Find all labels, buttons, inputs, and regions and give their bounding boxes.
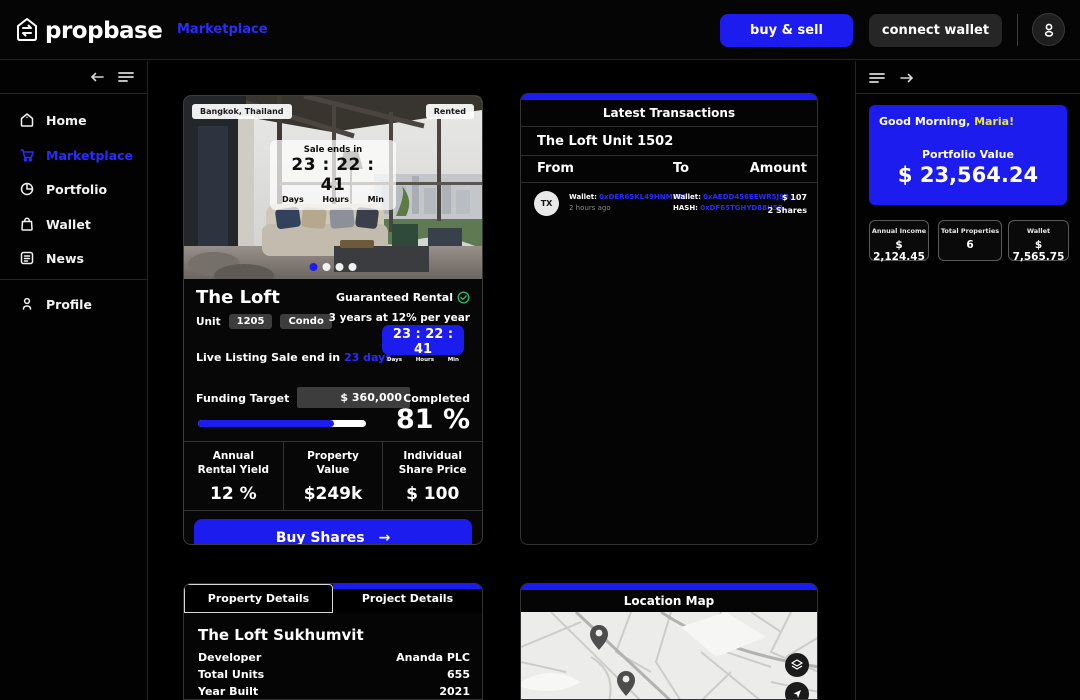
stat-share-price: Individual Share Price $ 100: [382, 442, 482, 510]
cart-icon: [19, 147, 35, 163]
property-stats-row: Annual Rental Yield 12 % Property Value …: [184, 441, 482, 511]
funding-target-label: Funding Target: [196, 392, 289, 405]
carousel-dot[interactable]: [310, 263, 318, 271]
greeting: Good Morning, Maria!: [879, 115, 1014, 128]
funding-progress-fill: [198, 420, 334, 427]
top-bar: propbase Marketplace buy & sell connect …: [0, 0, 1080, 60]
person-icon: [1041, 22, 1057, 38]
photo-carousel-dots: [310, 263, 357, 271]
compass-icon: [790, 687, 804, 700]
countdown-chip: 23 : 22 : 41 Days Hours Min: [382, 325, 464, 355]
location-map-title: Location Map: [521, 590, 817, 612]
hours-label: Hours: [416, 357, 434, 363]
unit-number-chip: 1205: [229, 314, 273, 329]
guarantee-detail: 3 years at 12% per year: [329, 312, 470, 324]
tx-amount-cell: $ 107 2 Shares: [768, 192, 807, 218]
topnav-marketplace-link[interactable]: Marketplace: [177, 22, 268, 37]
stat-annual-rental-yield: Annual Rental Yield 12 %: [184, 442, 283, 510]
verified-check-icon: [457, 291, 470, 304]
tab-property-details[interactable]: Property Details: [184, 584, 333, 613]
connect-wallet-button[interactable]: connect wallet: [869, 14, 1002, 47]
live-listing-row: Live Listing Sale end in 23 days: [196, 351, 392, 364]
project-title: The Loft Sukhumvit: [198, 626, 364, 644]
unit-label: Unit: [196, 316, 221, 328]
col-from: From: [537, 161, 574, 176]
property-card: Bangkok, Thailand Rented Sale ends in 23…: [183, 95, 483, 545]
portfolio-value-label: Portfolio Value: [869, 148, 1067, 161]
funding-target-value: $ 360,000: [297, 387, 410, 408]
sidebar-item-home[interactable]: Home: [0, 105, 148, 135]
tab-project-details[interactable]: Project Details: [333, 584, 482, 613]
profile-icon: [19, 296, 35, 312]
left-sidebar: Home Marketplace Portfolio Wallet News P…: [0, 61, 148, 700]
countdown-time: 23 : 22 : 41: [382, 327, 464, 357]
buy-shares-button[interactable]: Buy Shares →: [194, 519, 472, 545]
min-label: Min: [368, 195, 384, 204]
detail-row-developer: Developer Ananda PLC: [198, 651, 470, 664]
map-compass-button[interactable]: [785, 682, 809, 700]
property-photo: Bangkok, Thailand Rented Sale ends in 23…: [184, 96, 482, 279]
sidebar-item-profile[interactable]: Profile: [0, 289, 148, 319]
carousel-dot[interactable]: [349, 263, 357, 271]
hours-label: Hours: [322, 195, 349, 204]
transactions-header: From To Amount: [521, 156, 817, 183]
propbase-logo-icon: [13, 15, 41, 47]
portfolio-value: $ 23,564.24: [869, 163, 1067, 187]
news-icon: [19, 250, 35, 266]
carousel-dot[interactable]: [336, 263, 344, 271]
min-label: Min: [448, 357, 459, 363]
guaranteed-rental-label: Guaranteed Rental: [336, 291, 453, 304]
arrow-right-icon: →: [379, 530, 391, 545]
stat-property-value: Property Value $249k: [283, 442, 383, 510]
pie-chart-icon: [19, 181, 35, 197]
sidebar-divider: [0, 279, 148, 280]
completed-percent: 81 %: [396, 404, 470, 435]
brand: propbase: [13, 15, 162, 47]
brand-name: propbase: [45, 18, 162, 44]
carousel-dot[interactable]: [323, 263, 331, 271]
bag-icon: [19, 216, 35, 232]
expand-arrow-icon[interactable]: [898, 70, 916, 86]
active-tab-accent: [333, 584, 482, 589]
unit-row: Unit 1205 Condo: [196, 314, 332, 329]
live-listing-label: Live Listing Sale end in: [196, 351, 340, 364]
map-layers-button[interactable]: [785, 653, 809, 677]
user-name: Maria!: [974, 115, 1014, 128]
layers-icon: [790, 658, 804, 672]
sidebar-item-news[interactable]: News: [0, 243, 148, 273]
sidebar-item-marketplace[interactable]: Marketplace: [0, 140, 148, 170]
detail-row-year-built: Year Built 2021: [198, 685, 470, 698]
days-label: Days: [387, 357, 402, 363]
total-properties-card: Total Properties 6: [938, 220, 1002, 261]
transactions-title: Latest Transactions: [521, 100, 817, 127]
sale-countdown-time: 23 : 22 : 41: [276, 155, 390, 195]
wallet-balance-card: Wallet $ 7,565.75: [1008, 220, 1069, 261]
sidebar-item-wallet[interactable]: Wallet: [0, 209, 148, 239]
col-to: To: [673, 161, 689, 176]
col-amount: Amount: [750, 161, 807, 176]
property-title: The Loft: [196, 287, 280, 308]
menu-icon[interactable]: [867, 70, 887, 86]
rightpanel-header: [856, 61, 1080, 94]
annual-income-card: Annual Income $ 2,124.45: [869, 220, 929, 261]
map[interactable]: [521, 612, 818, 700]
buy-sell-button[interactable]: buy & sell: [720, 14, 853, 47]
transactions-subtitle: The Loft Unit 1502: [521, 128, 817, 156]
home-icon: [19, 112, 35, 128]
condo-chip: Condo: [280, 314, 331, 329]
rented-badge: Rented: [426, 104, 474, 119]
sidebar-header: [0, 61, 148, 94]
details-card: Property Details Project Details The Lof…: [183, 583, 483, 700]
collapse-arrow-icon[interactable]: [88, 69, 106, 85]
sidebar-item-portfolio[interactable]: Portfolio: [0, 174, 148, 204]
transaction-row: TX Wallet: 0xDER65KL49HNM8Y5... 2 hours …: [521, 183, 817, 223]
location-map-card: Location Map: [520, 583, 818, 700]
tx-icon: TX: [534, 191, 559, 216]
topbar-divider: [1017, 14, 1018, 46]
buy-shares-label: Buy Shares: [276, 530, 365, 545]
days-label: Days: [282, 195, 304, 204]
portfolio-panel: Good Morning, Maria! Portfolio Value $ 2…: [855, 61, 1080, 700]
map-image: [521, 612, 818, 700]
profile-avatar-button[interactable]: [1032, 13, 1065, 46]
funding-progress-bar: [198, 420, 366, 427]
latest-transactions-card: Latest Transactions The Loft Unit 1502 F…: [520, 93, 818, 545]
guaranteed-rental: Guaranteed Rental: [336, 291, 470, 304]
menu-icon[interactable]: [116, 69, 136, 85]
detail-row-total-units: Total Units 655: [198, 668, 470, 681]
greeting-card: Good Morning, Maria! Portfolio Value $ 2…: [869, 105, 1067, 205]
sale-ends-label: Sale ends in: [276, 145, 390, 155]
sale-countdown-overlay: Sale ends in 23 : 22 : 41 Days Hours Min: [270, 140, 396, 210]
location-badge: Bangkok, Thailand: [192, 104, 292, 119]
